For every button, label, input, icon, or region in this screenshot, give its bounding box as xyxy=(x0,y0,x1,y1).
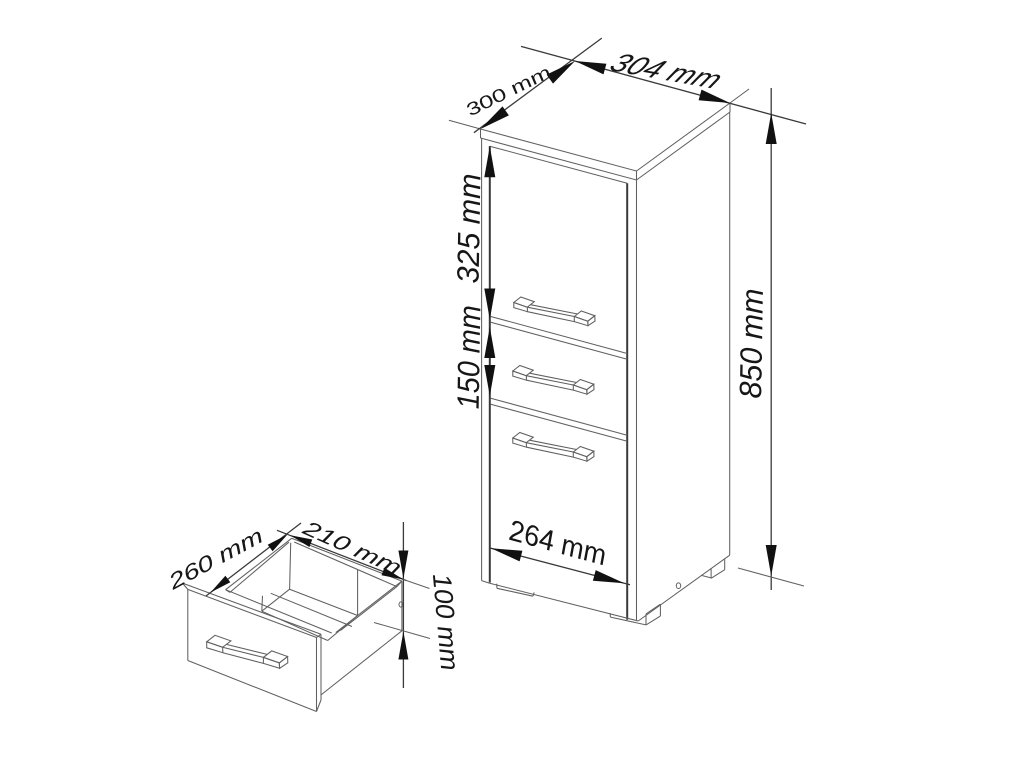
svg-text:850 mm: 850 mm xyxy=(733,288,770,399)
svg-text:150 mm: 150 mm xyxy=(451,305,488,410)
svg-text:260 mm: 260 mm xyxy=(164,524,266,595)
svg-text:100 mm: 100 mm xyxy=(427,572,465,671)
svg-text:210 mm: 210 mm xyxy=(298,517,406,580)
svg-text:304 mm: 304 mm xyxy=(604,48,730,94)
svg-text:264 mm: 264 mm xyxy=(508,513,605,573)
svg-text:325 mm: 325 mm xyxy=(451,173,488,284)
svg-text:300 mm: 300 mm xyxy=(461,63,556,120)
